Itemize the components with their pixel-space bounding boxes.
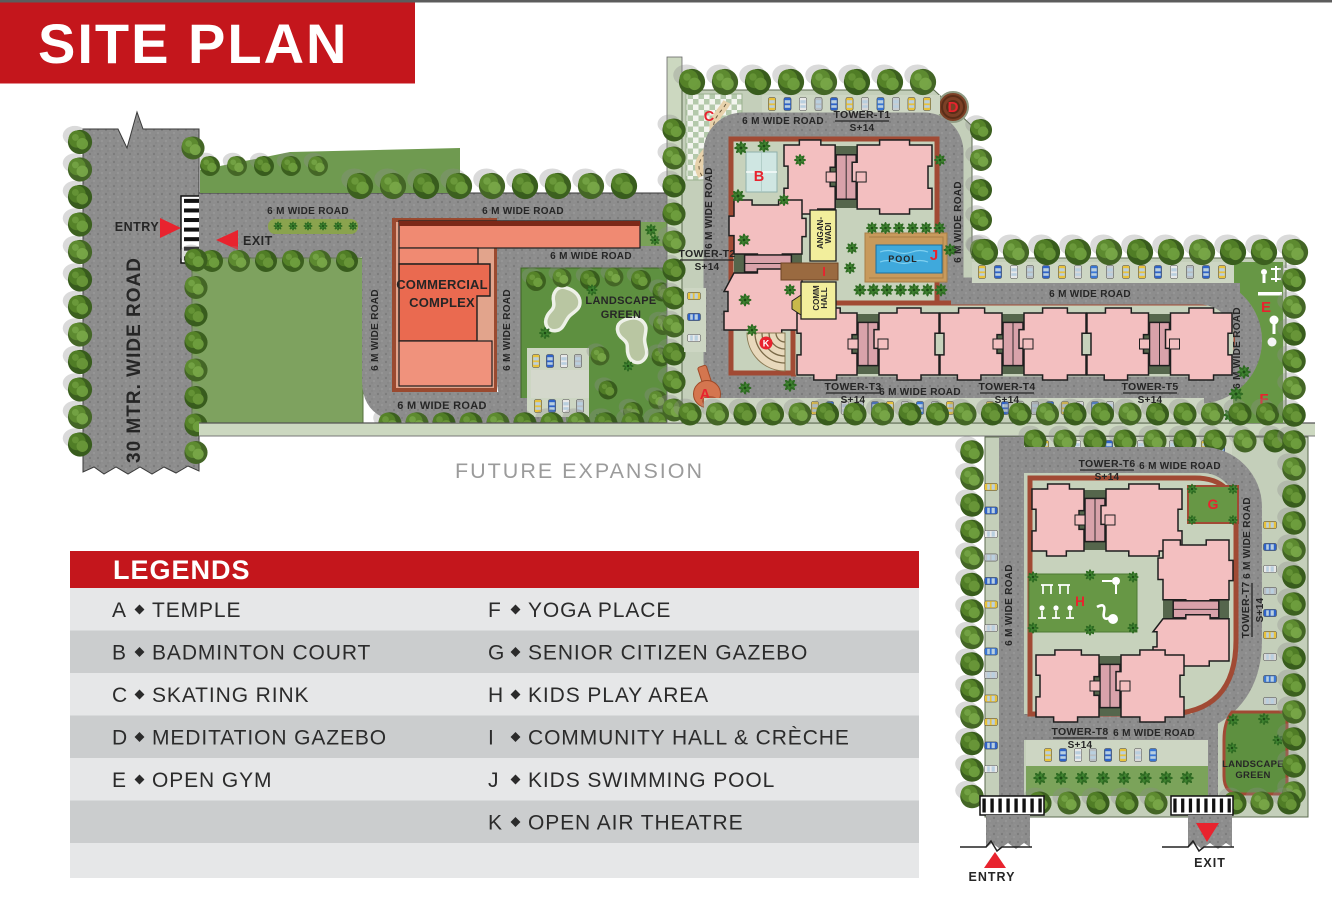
svg-text:H: H [488,684,503,707]
svg-text:D: D [948,99,959,116]
svg-text:S+14: S+14 [1095,472,1120,483]
svg-text:6 M WIDE ROAD: 6 M WIDE ROAD [742,116,824,127]
svg-text:TOWER-T5: TOWER-T5 [1121,381,1178,393]
svg-text:YOGA PLACE: YOGA PLACE [528,599,671,622]
svg-text:TOWER-T3: TOWER-T3 [824,381,881,393]
svg-text:G: G [488,642,504,665]
svg-text:KIDS SWIMMING POOL: KIDS SWIMMING POOL [528,769,775,792]
svg-text:MEDITATION GAZEBO: MEDITATION GAZEBO [152,727,387,750]
svg-text:SITE PLAN: SITE PLAN [38,12,348,75]
svg-text:6 M WIDE ROAD: 6 M WIDE ROAD [1139,461,1221,472]
svg-text:F: F [488,599,501,622]
svg-text:K: K [763,339,770,349]
svg-text:S+14: S+14 [850,123,875,134]
svg-text:G: G [1208,496,1219,512]
svg-text:ENTRY: ENTRY [115,220,160,234]
svg-text:6 M WIDE ROAD: 6 M WIDE ROAD [550,251,632,262]
svg-text:BADMINTON COURT: BADMINTON COURT [152,642,371,665]
svg-text:POOL: POOL [888,254,918,264]
svg-text:HALL: HALL [820,287,829,308]
svg-text:COMMUNITY HALL & CRÈCHE: COMMUNITY HALL & CRÈCHE [528,727,850,750]
svg-text:EXIT: EXIT [1194,856,1226,870]
svg-text:TOWER-T8: TOWER-T8 [1051,726,1108,738]
svg-text:EXIT: EXIT [243,234,273,248]
svg-text:J: J [930,247,938,264]
svg-text:S+14: S+14 [995,395,1020,406]
svg-text:FUTURE EXPANSION: FUTURE EXPANSION [455,459,704,483]
svg-text:TOWER-T6: TOWER-T6 [1078,458,1135,470]
svg-text:S+14: S+14 [1068,740,1093,751]
svg-text:I: I [822,264,826,279]
svg-text:OPEN GYM: OPEN GYM [152,769,272,792]
svg-text:TOWER-T7: TOWER-T7 [1240,581,1252,638]
svg-text:A: A [112,599,126,622]
svg-text:LANDSCAPE: LANDSCAPE [1222,759,1284,770]
svg-text:COMPLEX: COMPLEX [409,295,475,310]
svg-text:6 M WIDE ROAD: 6 M WIDE ROAD [1004,564,1015,646]
svg-text:LANDSCAPE: LANDSCAPE [585,295,656,307]
svg-text:GREEN: GREEN [1235,770,1270,781]
svg-text:OPEN AIR THEATRE: OPEN AIR THEATRE [528,812,744,835]
svg-text:WADI: WADI [824,223,833,244]
svg-text:K: K [488,812,502,835]
svg-text:E: E [1261,299,1271,316]
svg-text:SKATING RINK: SKATING RINK [152,684,309,707]
svg-text:TEMPLE: TEMPLE [152,599,241,622]
svg-text:LEGENDS: LEGENDS [113,555,251,585]
svg-text:6 M WIDE ROAD: 6 M WIDE ROAD [1232,307,1243,389]
svg-text:6 M WIDE ROAD: 6 M WIDE ROAD [502,289,513,371]
svg-text:GREEN: GREEN [601,309,642,321]
svg-text:TOWER-T4: TOWER-T4 [978,381,1035,393]
svg-text:6 M WIDE ROAD: 6 M WIDE ROAD [1242,497,1253,579]
svg-text:B: B [112,642,126,665]
svg-text:TOWER-T2: TOWER-T2 [678,248,735,260]
svg-text:S+14: S+14 [695,262,720,273]
svg-text:6 M WIDE ROAD: 6 M WIDE ROAD [879,387,961,398]
svg-text:6 M WIDE ROAD: 6 M WIDE ROAD [370,289,381,371]
svg-text:6 M WIDE ROAD: 6 M WIDE ROAD [704,167,715,249]
svg-text:6 M WIDE ROAD: 6 M WIDE ROAD [267,206,349,217]
svg-text:S+14: S+14 [841,395,866,406]
svg-text:C: C [112,684,127,707]
svg-text:6 M WIDE ROAD: 6 M WIDE ROAD [1113,728,1195,739]
svg-text:COMMERCIAL: COMMERCIAL [396,277,488,292]
svg-text:KIDS PLAY AREA: KIDS PLAY AREA [528,684,709,707]
svg-text:SENIOR CITIZEN GAZEBO: SENIOR CITIZEN GAZEBO [528,642,808,665]
svg-text:I: I [488,727,494,750]
svg-text:C: C [704,109,715,125]
svg-text:E: E [112,769,126,792]
svg-text:30 MTR. WIDE ROAD: 30 MTR. WIDE ROAD [124,257,145,463]
svg-text:J: J [488,769,499,792]
svg-text:6 M WIDE ROAD: 6 M WIDE ROAD [482,206,564,217]
svg-text:S+14: S+14 [1138,395,1163,406]
svg-text:6 M WIDE ROAD: 6 M WIDE ROAD [1049,289,1131,300]
svg-text:TOWER-T1: TOWER-T1 [833,109,890,121]
svg-text:D: D [112,727,127,750]
svg-text:H: H [1075,594,1085,609]
svg-text:B: B [754,169,764,185]
svg-text:ENTRY: ENTRY [969,870,1016,884]
